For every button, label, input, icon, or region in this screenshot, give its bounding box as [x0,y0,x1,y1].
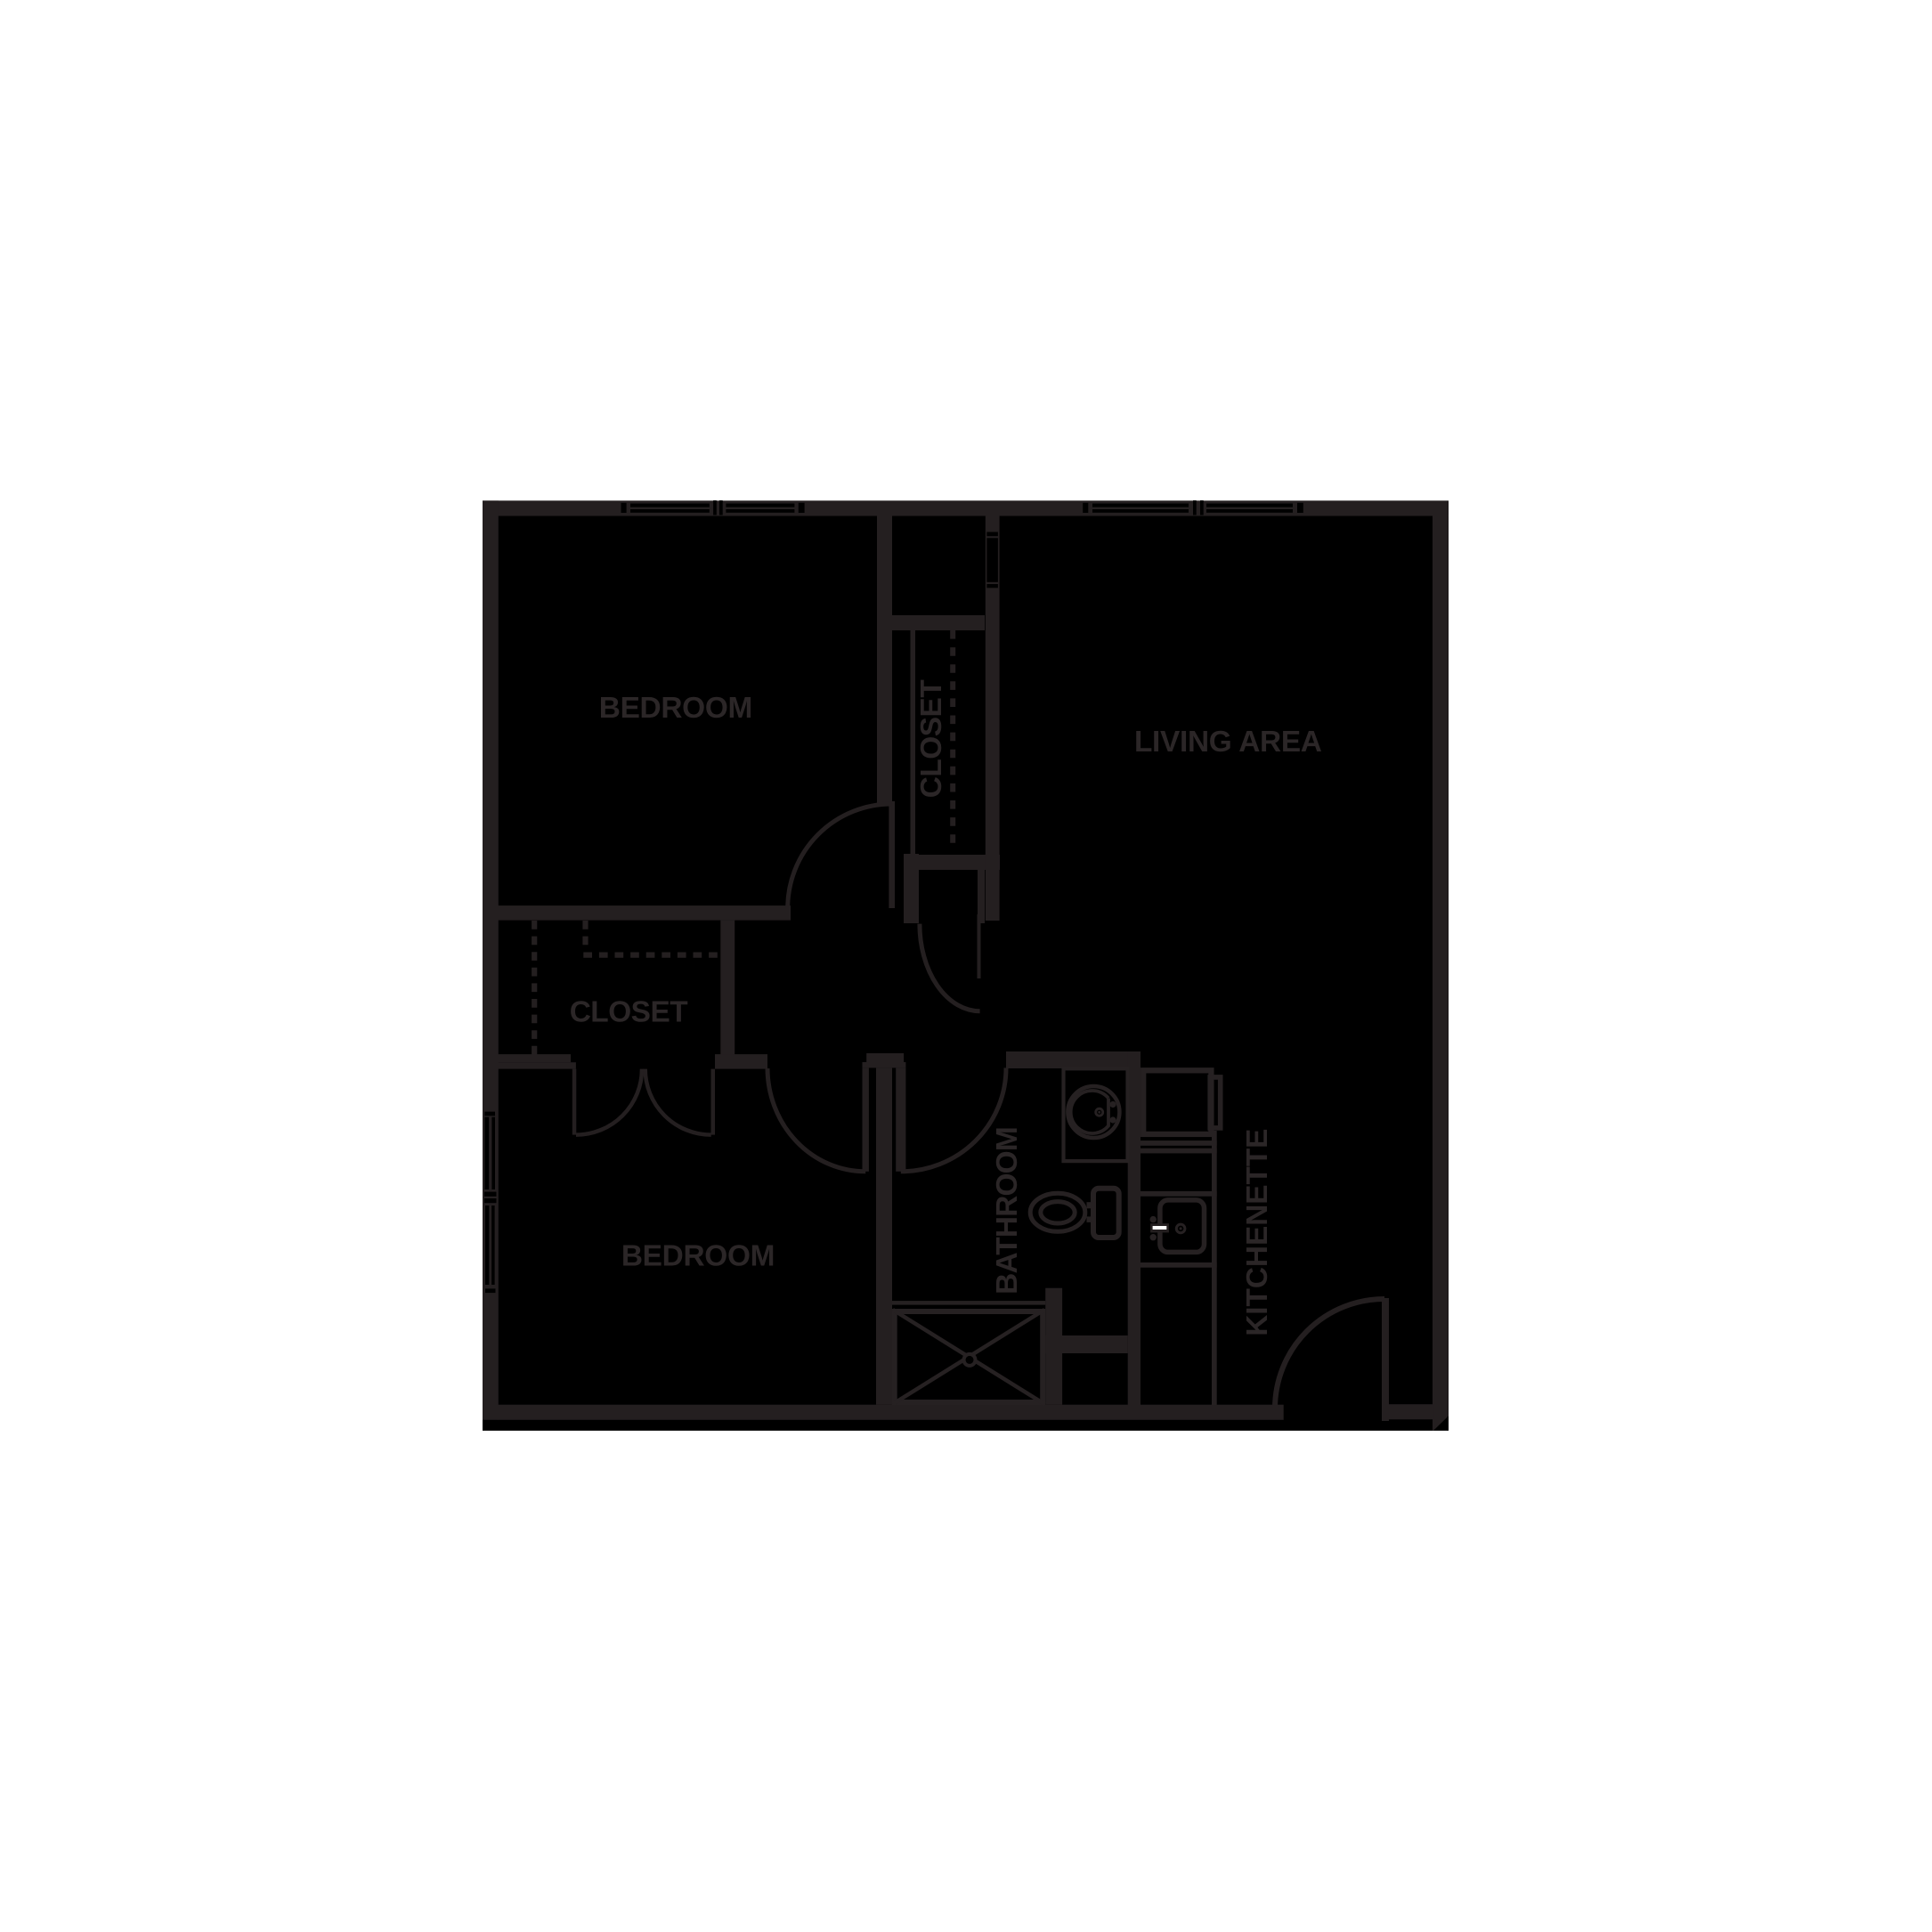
svg-text:BEDROOM: BEDROOM [599,692,752,725]
svg-text:KITCHENETTE: KITCHENETTE [1241,1129,1274,1336]
svg-text:LIVING AREA: LIVING AREA [1134,726,1322,759]
svg-text:CLOSET: CLOSET [915,679,948,799]
svg-text:BEDROOM: BEDROOM [621,1239,775,1272]
svg-text:BATHROOM: BATHROOM [991,1127,1024,1295]
svg-text:CLOSET: CLOSET [570,996,689,1029]
